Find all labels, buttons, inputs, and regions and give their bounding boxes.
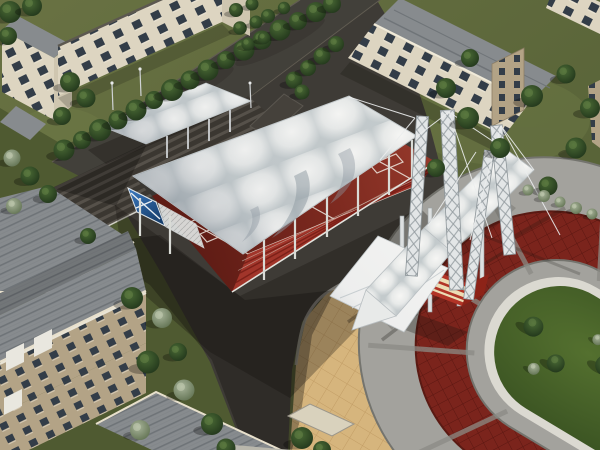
render-stage — [0, 0, 600, 450]
scene-svg — [0, 0, 600, 450]
